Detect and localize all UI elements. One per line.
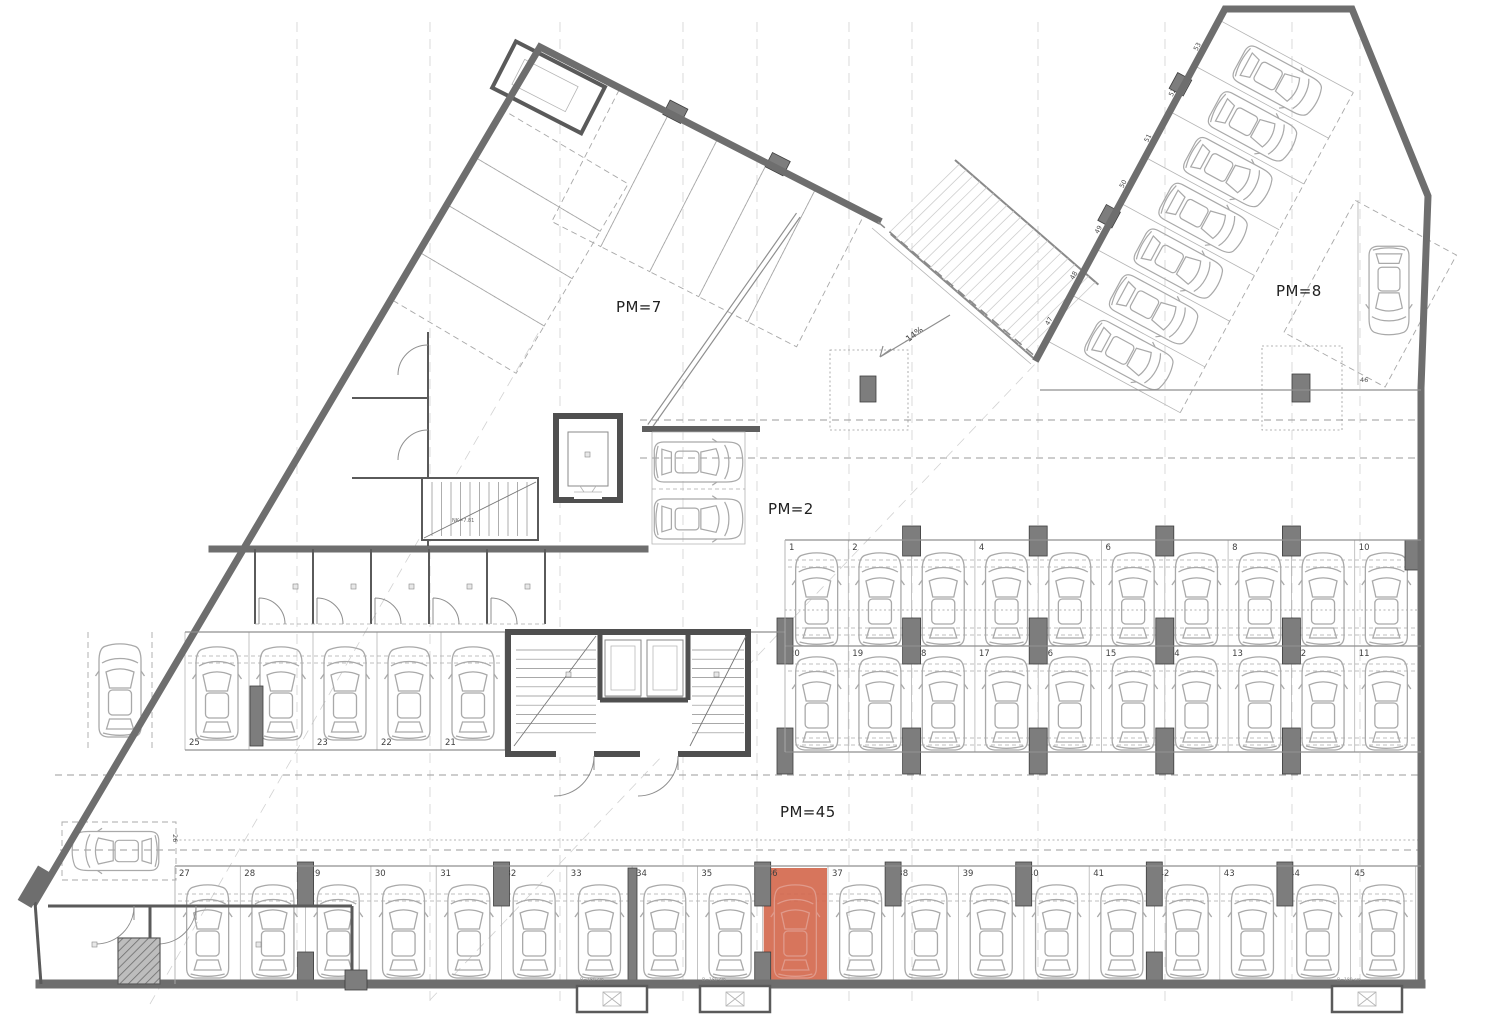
car-icon xyxy=(510,885,559,978)
column xyxy=(1292,374,1310,402)
zone-label-pm2: PM=2 xyxy=(768,500,814,518)
column xyxy=(1156,526,1174,556)
car-icon xyxy=(385,647,434,740)
car-icon xyxy=(1366,246,1413,334)
room-marker xyxy=(467,584,472,589)
car-icon xyxy=(706,885,755,978)
room-marker xyxy=(525,584,530,589)
column xyxy=(1146,952,1162,982)
space-46-number: 46 xyxy=(1360,376,1368,384)
zone-label-pm7: PM=7 xyxy=(616,298,662,316)
future-stall xyxy=(421,206,572,326)
row-bottom: 27282930313233343536373839404142434445 xyxy=(175,866,1416,986)
space-8[interactable]: 8 xyxy=(1228,540,1284,646)
column xyxy=(755,862,771,906)
column xyxy=(903,618,921,664)
column xyxy=(903,526,921,556)
space-39[interactable]: 39 xyxy=(959,866,1016,986)
columns xyxy=(250,374,1419,982)
car-icon xyxy=(836,885,885,978)
depth-note: B=180 cm xyxy=(1337,977,1361,983)
window-niche xyxy=(700,986,770,1012)
space-10[interactable]: 10 xyxy=(1355,540,1411,646)
ramp-slope-label: -14% xyxy=(902,325,926,346)
car-icon xyxy=(193,647,242,740)
space-number: 1 xyxy=(789,543,794,553)
column xyxy=(250,686,263,746)
space-25[interactable]: 25 xyxy=(185,632,242,750)
upper-elevator xyxy=(556,416,620,500)
space-number: 30 xyxy=(375,869,386,879)
space-number: 8 xyxy=(1232,543,1237,553)
slope-arrow xyxy=(880,315,950,357)
column xyxy=(298,952,314,982)
space-number: 19 xyxy=(852,649,863,659)
room-marker xyxy=(409,584,414,589)
column xyxy=(1146,862,1162,906)
storage-room[interactable] xyxy=(491,584,530,624)
storage-rooms xyxy=(255,549,545,624)
space-36[interactable]: 36 xyxy=(763,866,827,986)
space-2[interactable]: 2 xyxy=(848,540,904,646)
column xyxy=(1016,862,1032,906)
space-23[interactable]: 23 xyxy=(313,632,370,750)
row-top: 12345678910 xyxy=(785,540,1418,646)
ramp-corridor-lines xyxy=(647,197,801,445)
space-number: 41 xyxy=(1093,869,1104,879)
car-icon xyxy=(901,885,950,978)
hatched-block xyxy=(118,938,160,984)
stair-level-note: NK=7.81 xyxy=(452,518,474,524)
space-number: 37 xyxy=(832,869,843,879)
room-marker xyxy=(585,452,590,457)
space-20[interactable]: 20 xyxy=(785,646,841,752)
space-number: 10 xyxy=(1359,543,1370,553)
corner-rooms xyxy=(18,865,1402,1012)
row-middle: 20191817161514131211 xyxy=(785,646,1418,752)
car-icon xyxy=(967,885,1016,978)
zone-label-pm8: PM=8 xyxy=(1276,282,1322,300)
space-number: 45 xyxy=(1354,869,1365,879)
space-number: 34 xyxy=(636,869,647,879)
upper-stair xyxy=(422,478,538,540)
column xyxy=(298,862,314,906)
room-marker xyxy=(351,584,356,589)
space-number: 15 xyxy=(1106,649,1117,659)
car-icon xyxy=(1080,315,1179,397)
column xyxy=(755,952,771,982)
car-icon xyxy=(314,885,363,978)
space-34[interactable]: 34 xyxy=(632,866,689,986)
column xyxy=(1156,728,1174,774)
column xyxy=(1029,526,1047,556)
car-icon xyxy=(1293,885,1342,978)
space-6[interactable]: 6 xyxy=(1102,540,1158,646)
space-22[interactable]: 22 xyxy=(377,632,434,750)
space-number: 4 xyxy=(979,543,984,553)
car-icon xyxy=(654,439,742,486)
space-13[interactable]: 13 xyxy=(1228,646,1284,752)
pm2-spaces[interactable] xyxy=(654,439,742,543)
depth-note: B=180 cm xyxy=(580,977,604,983)
column xyxy=(1029,618,1047,664)
right-wing-wall xyxy=(1037,9,1428,984)
guide-lines xyxy=(175,228,1420,840)
future-stall xyxy=(393,253,544,373)
car-icon xyxy=(257,647,306,740)
space-43[interactable]: 43 xyxy=(1220,866,1277,986)
highlighted-space xyxy=(764,868,827,986)
room-marker xyxy=(293,584,298,589)
car-icon xyxy=(248,885,297,978)
space-number: 28 xyxy=(244,869,255,879)
future-stall xyxy=(650,140,766,297)
column xyxy=(494,862,510,906)
space-17[interactable]: 17 xyxy=(975,646,1031,752)
space-27[interactable]: 27 xyxy=(175,866,232,986)
car-icon xyxy=(1163,885,1212,978)
space-number: 27 xyxy=(179,869,190,879)
row-left: 2524232221 xyxy=(185,632,505,750)
storage-room[interactable] xyxy=(375,584,414,624)
space-33[interactable]: 33 xyxy=(567,866,624,986)
car-icon xyxy=(72,828,159,874)
space-number: 11 xyxy=(1359,649,1370,659)
space-44[interactable]: 44 xyxy=(1285,866,1342,986)
window-niche xyxy=(577,986,647,1012)
space-number: 2 xyxy=(852,543,857,553)
future-stall xyxy=(477,111,628,231)
upper-left-room-walls xyxy=(352,332,428,546)
column xyxy=(1277,862,1293,906)
space-42[interactable]: 42 xyxy=(1155,866,1212,986)
car-icon xyxy=(444,885,493,978)
space-35[interactable]: 35 xyxy=(697,866,754,986)
car-icon xyxy=(1097,885,1146,978)
car-icon xyxy=(1228,885,1277,978)
car-icon xyxy=(379,885,428,978)
future-stall xyxy=(748,190,864,347)
parking-floor-plan: 47484950515253 1234567891020191817161514… xyxy=(0,0,1500,1016)
space-29[interactable]: 29 xyxy=(306,866,363,986)
storage-room[interactable] xyxy=(259,584,298,624)
space-46[interactable] xyxy=(1366,246,1413,334)
unnumbered-spaces xyxy=(88,632,152,750)
car-icon xyxy=(640,885,689,978)
zone-label-pm45: PM=45 xyxy=(780,803,836,821)
column xyxy=(1282,728,1300,774)
space-28[interactable]: 28 xyxy=(240,866,297,986)
space-number: 22 xyxy=(381,738,392,748)
space-number: 13 xyxy=(1232,649,1243,659)
space-41[interactable]: 41 xyxy=(1089,866,1146,986)
space-31[interactable]: 31 xyxy=(436,866,493,986)
grid-lines xyxy=(55,22,1420,1004)
bottom-left-corner-wall xyxy=(35,902,41,984)
space-4[interactable]: 4 xyxy=(975,540,1031,646)
future-stall xyxy=(449,158,600,278)
space-number: 23 xyxy=(317,738,328,748)
column xyxy=(885,862,901,906)
column xyxy=(1156,618,1174,664)
car-icon xyxy=(654,496,742,543)
space-37[interactable]: 37 xyxy=(828,866,885,986)
column xyxy=(1029,728,1047,774)
car-icon xyxy=(1359,885,1408,978)
parking-rows: 1234567891020191817161514131211252423222… xyxy=(62,246,1418,986)
column xyxy=(860,376,876,402)
column xyxy=(903,728,921,774)
car-icon xyxy=(183,885,232,978)
column xyxy=(1282,526,1300,556)
car-icon xyxy=(1032,885,1081,978)
space-number: 39 xyxy=(963,869,974,879)
space-1[interactable]: 1 xyxy=(785,540,841,646)
space-number: 25 xyxy=(189,738,200,748)
space-40[interactable]: 40 xyxy=(1024,866,1081,986)
window-niche xyxy=(1332,986,1402,1012)
space-32[interactable]: 32 xyxy=(502,866,559,986)
space-26-number: 26 xyxy=(171,834,179,842)
space-number: 35 xyxy=(701,869,712,879)
column xyxy=(1405,540,1419,570)
column xyxy=(628,868,637,982)
space-number: 17 xyxy=(979,649,990,659)
space-15[interactable]: 15 xyxy=(1102,646,1158,752)
space-38[interactable]: 38 xyxy=(893,866,950,986)
storage-room[interactable] xyxy=(317,584,356,624)
space-19[interactable]: 19 xyxy=(848,646,904,752)
space-number: 21 xyxy=(445,738,456,748)
space-11[interactable]: 11 xyxy=(1355,646,1411,752)
space-30[interactable]: 30 xyxy=(371,866,428,986)
wing-upper-right-pm8: 47484950515253 xyxy=(1036,15,1500,493)
space-number: 31 xyxy=(440,869,451,879)
space-number: 43 xyxy=(1224,869,1235,879)
car-icon xyxy=(321,647,370,740)
depth-note: B=180 cm xyxy=(702,977,726,983)
stair-elevator-core xyxy=(508,632,748,796)
car-icon xyxy=(575,885,624,978)
future-stall xyxy=(601,115,717,272)
space-number: 33 xyxy=(571,869,582,879)
left-and-top-wall xyxy=(35,47,878,902)
car-icon xyxy=(449,647,498,740)
space-number: 6 xyxy=(1106,543,1111,553)
storage-room[interactable] xyxy=(433,584,472,624)
column xyxy=(1282,618,1300,664)
space-45[interactable]: 45 xyxy=(1350,866,1407,986)
space-21[interactable]: 21 xyxy=(441,632,498,750)
